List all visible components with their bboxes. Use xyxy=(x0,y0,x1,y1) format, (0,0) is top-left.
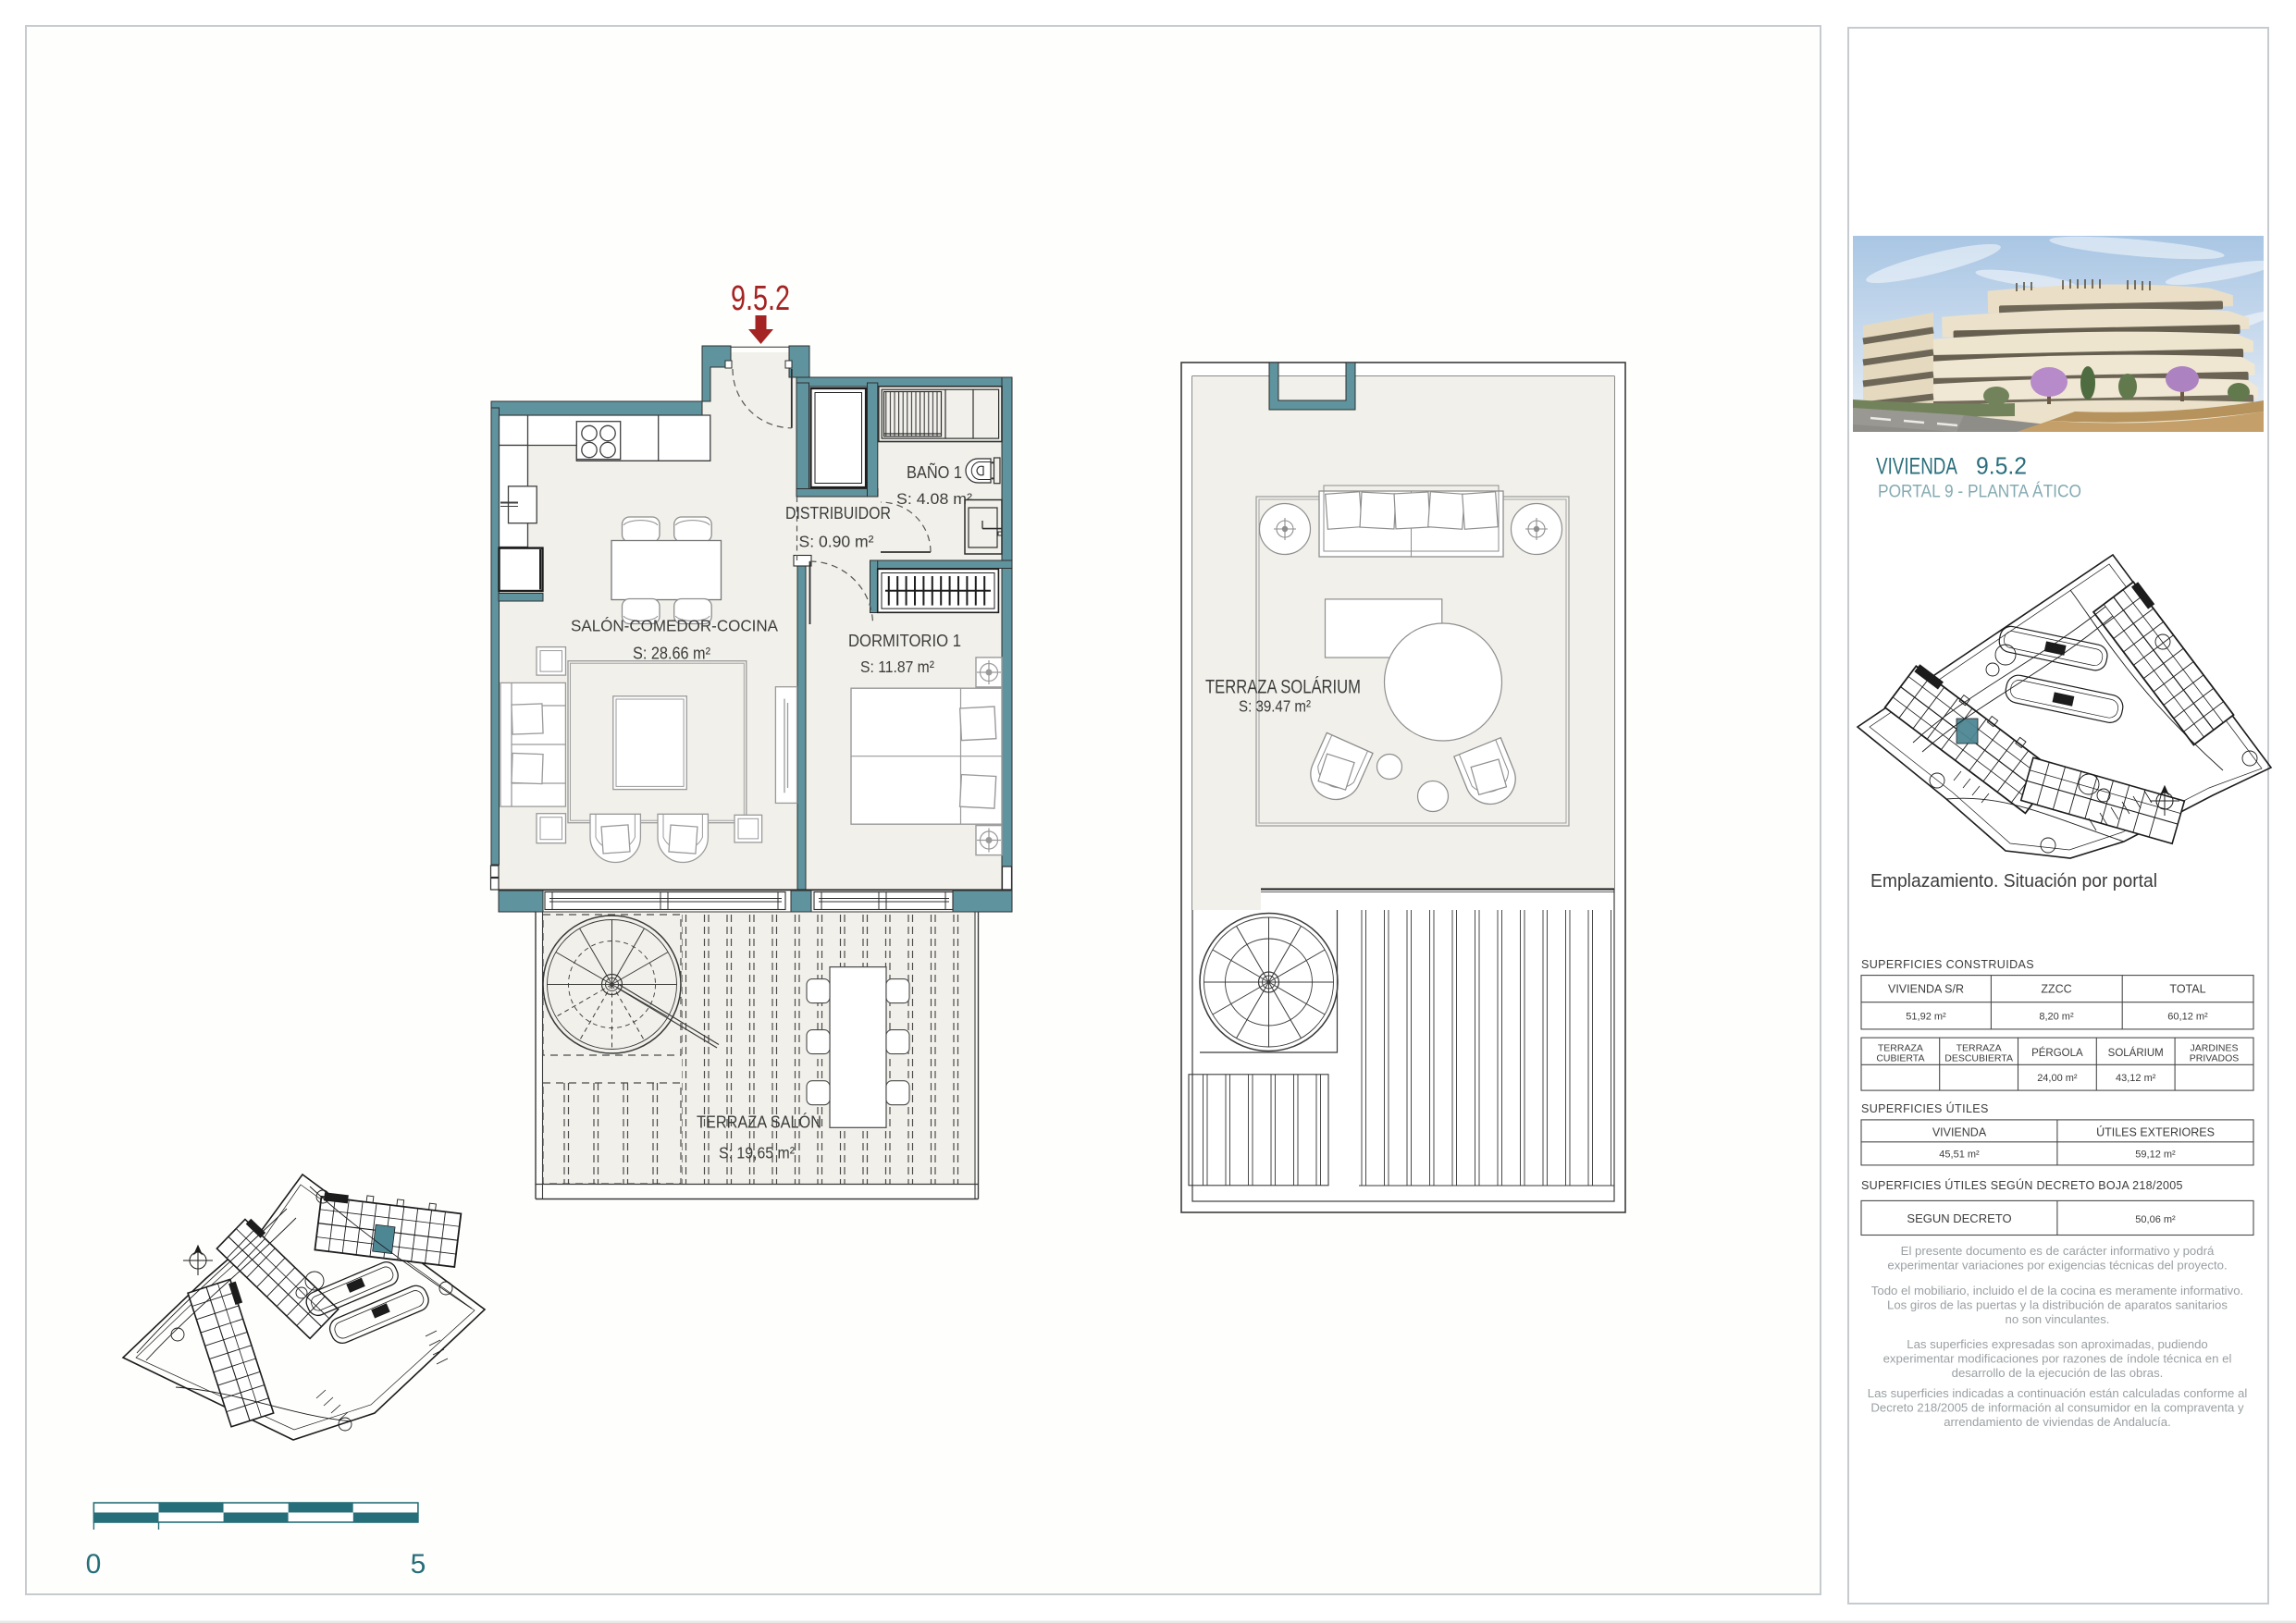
svg-text:DORMITORIO 1: DORMITORIO 1 xyxy=(848,632,961,650)
svg-text:TOTAL: TOTAL xyxy=(2169,983,2205,996)
svg-text:ÚTILES EXTERIORES: ÚTILES EXTERIORES xyxy=(2096,1125,2215,1139)
svg-text:S: 39.47 m²: S: 39.47 m² xyxy=(1239,697,1311,716)
svg-text:Decreto 218/2005 de informació: Decreto 218/2005 de información al consu… xyxy=(1870,1401,2244,1415)
svg-text:desarrollo de la ejecución de: desarrollo de la ejecución de las obras. xyxy=(1952,1366,2164,1380)
svg-text:SUPERFICIES CONSTRUIDAS: SUPERFICIES CONSTRUIDAS xyxy=(1861,958,2034,971)
svg-text:DISTRIBUIDOR: DISTRIBUIDOR xyxy=(785,504,891,523)
svg-text:El presente documento es de ca: El presente documento es de carácter inf… xyxy=(1901,1244,2215,1258)
svg-text:SUPERFICIES ÚTILES SEGÚN DECRE: SUPERFICIES ÚTILES SEGÚN DECRETO BOJA 21… xyxy=(1861,1178,2183,1192)
svg-text:VIVIENDA: VIVIENDA xyxy=(1876,454,1957,480)
svg-text:Todo el mobiliario, incluido e: Todo el mobiliario, incluido el de la co… xyxy=(1871,1284,2243,1297)
svg-text:9.5.2: 9.5.2 xyxy=(731,279,790,318)
svg-text:S: 28.66 m²: S: 28.66 m² xyxy=(633,644,710,662)
svg-text:TERRAZA SOLÁRIUM: TERRAZA SOLÁRIUM xyxy=(1205,677,1361,698)
svg-text:CUBIERTA: CUBIERTA xyxy=(1876,1053,1924,1064)
svg-text:S: 4.08 m²: S: 4.08 m² xyxy=(896,490,972,508)
svg-text:ZZCC: ZZCC xyxy=(2041,983,2071,996)
svg-text:VIVIENDA S/R: VIVIENDA S/R xyxy=(1888,983,1964,996)
svg-text:S: 19,65 m²: S: 19,65 m² xyxy=(719,1144,795,1162)
svg-text:no son vinculantes.: no son vinculantes. xyxy=(2006,1312,2110,1326)
svg-text:SALÓN-COMEDOR-COCINA: SALÓN-COMEDOR-COCINA xyxy=(571,616,778,635)
svg-text:0: 0 xyxy=(86,1549,102,1580)
svg-text:45,51 m²: 45,51 m² xyxy=(1939,1150,1980,1161)
svg-text:experimentar variaciones por e: experimentar variaciones por exigencias … xyxy=(1887,1259,2227,1273)
svg-text:PRIVADOS: PRIVADOS xyxy=(2190,1053,2239,1064)
svg-text:DESCUBIERTA: DESCUBIERTA xyxy=(1944,1053,2013,1064)
svg-text:BAÑO 1: BAÑO 1 xyxy=(907,462,962,482)
svg-text:Los giros de las puertas y la: Los giros de las puertas y la distribuci… xyxy=(1887,1298,2228,1312)
svg-text:SUPERFICIES ÚTILES: SUPERFICIES ÚTILES xyxy=(1861,1101,1989,1115)
svg-text:experimentar modificaciones po: experimentar modificaciones por razones … xyxy=(1883,1352,2232,1366)
svg-text:PÉRGOLA: PÉRGOLA xyxy=(2031,1047,2083,1059)
svg-text:9.5.2: 9.5.2 xyxy=(1976,452,2027,480)
svg-text:arrendamiento de viviendas de: arrendamiento de viviendas de Andalucía. xyxy=(1944,1415,2171,1429)
svg-text:Las superficies expresadas son: Las superficies expresadas son aproximad… xyxy=(1907,1337,2208,1351)
svg-text:43,12 m²: 43,12 m² xyxy=(2116,1073,2156,1084)
svg-text:VIVIENDA: VIVIENDA xyxy=(1932,1126,1987,1139)
svg-text:Las superficies indicadas a co: Las superficies indicadas a continuación… xyxy=(1868,1386,2248,1400)
svg-text:60,12 m²: 60,12 m² xyxy=(2167,1012,2208,1023)
svg-text:SEGUN DECRETO: SEGUN DECRETO xyxy=(1907,1211,2011,1225)
svg-text:SOLÁRIUM: SOLÁRIUM xyxy=(2108,1047,2164,1059)
svg-text:5: 5 xyxy=(411,1549,426,1580)
svg-text:S: 11.87 m²: S: 11.87 m² xyxy=(860,658,934,676)
svg-text:50,06 m²: 50,06 m² xyxy=(2135,1214,2176,1225)
svg-text:8,20 m²: 8,20 m² xyxy=(2039,1012,2074,1023)
svg-text:Emplazamiento. Situación por p: Emplazamiento. Situación por portal xyxy=(1870,871,2157,891)
svg-text:24,00 m²: 24,00 m² xyxy=(2037,1073,2078,1084)
svg-text:S: 0.90 m²: S: 0.90 m² xyxy=(799,533,874,551)
svg-text:51,92 m²: 51,92 m² xyxy=(1906,1012,1946,1023)
svg-text:TERRAZA SALÓN: TERRAZA SALÓN xyxy=(697,1112,821,1131)
svg-text:PORTAL 9 - PLANTA ÁTICO: PORTAL 9 - PLANTA ÁTICO xyxy=(1878,481,2081,502)
svg-text:59,12 m²: 59,12 m² xyxy=(2135,1150,2176,1161)
